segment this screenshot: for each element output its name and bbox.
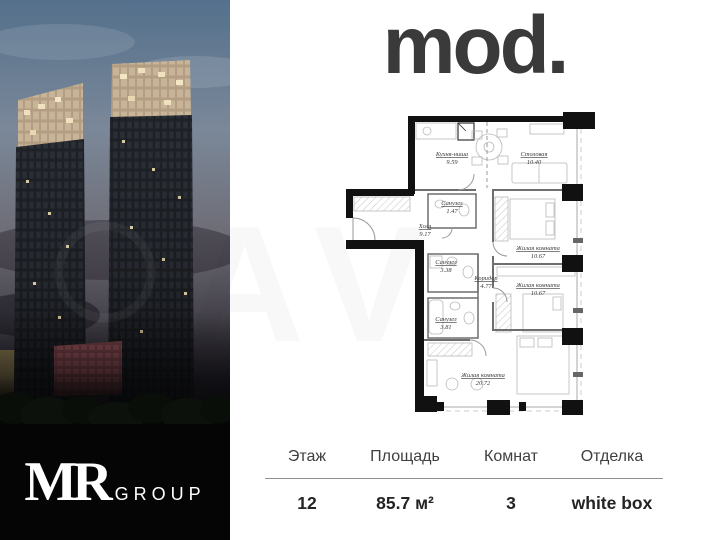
room-label-name: Санузел [441, 200, 463, 207]
details-header-area: Площадь [349, 448, 461, 466]
room-label-area: 1.47 [446, 208, 458, 215]
room-label-area: 20.72 [476, 380, 491, 387]
room-label-name: Столовая [521, 151, 548, 158]
room-label-name: Жилая комната [515, 282, 560, 289]
listing-card: MRGROUP AV mod. [0, 0, 719, 540]
room-label-name: Кухня-ниша [435, 151, 468, 158]
details-header-finish: Отделка [561, 448, 663, 466]
room-label-name: Жилая комната [460, 372, 505, 379]
developer-logo-mr: MR [24, 451, 107, 513]
details-table: Этаж Площадь Комнат Отделка 12 85.7 м² 3… [265, 448, 663, 514]
details-divider [265, 478, 663, 479]
details-value-floor: 12 [265, 493, 349, 514]
room-label-area: 3.38 [439, 267, 452, 274]
room-label-area: 10.67 [531, 253, 546, 260]
building-photo-panel: MRGROUP [0, 0, 230, 540]
room-label-area: 9.17 [419, 231, 431, 238]
plan-doors [353, 122, 507, 356]
room-label-area: 10.40 [527, 159, 542, 166]
room-label-area: 4.77 [480, 283, 492, 290]
developer-logo-group: GROUP [115, 484, 206, 504]
project-logo: mod. [230, 0, 719, 98]
details-value-row: 12 85.7 м² 3 white box [265, 493, 663, 514]
developer-logo: MRGROUP [0, 458, 230, 506]
details-header-row: Этаж Площадь Комнат Отделка [265, 448, 663, 466]
room-label-area: 9.59 [446, 159, 458, 166]
room-label-name: Санузел [435, 259, 457, 266]
room-label-name: Жилая комната [515, 245, 560, 252]
details-header-rooms: Комнат [461, 448, 561, 466]
room-label-name: Коридор [473, 275, 497, 282]
details-header-floor: Этаж [265, 448, 349, 466]
details-value-finish: white box [561, 493, 663, 514]
room-label-name: Санузел [435, 316, 457, 323]
room-label-area: 3.81 [439, 324, 451, 331]
details-value-rooms: 3 [461, 493, 561, 514]
details-value-area: 85.7 м² [349, 493, 461, 514]
floor-plan: Кухня-ниша 9.59 Столовая 10.40 Санузел 1… [340, 103, 602, 425]
plan-windows [437, 129, 583, 411]
room-label-name: Холл [418, 223, 432, 230]
room-label-area: 10.67 [531, 290, 546, 297]
